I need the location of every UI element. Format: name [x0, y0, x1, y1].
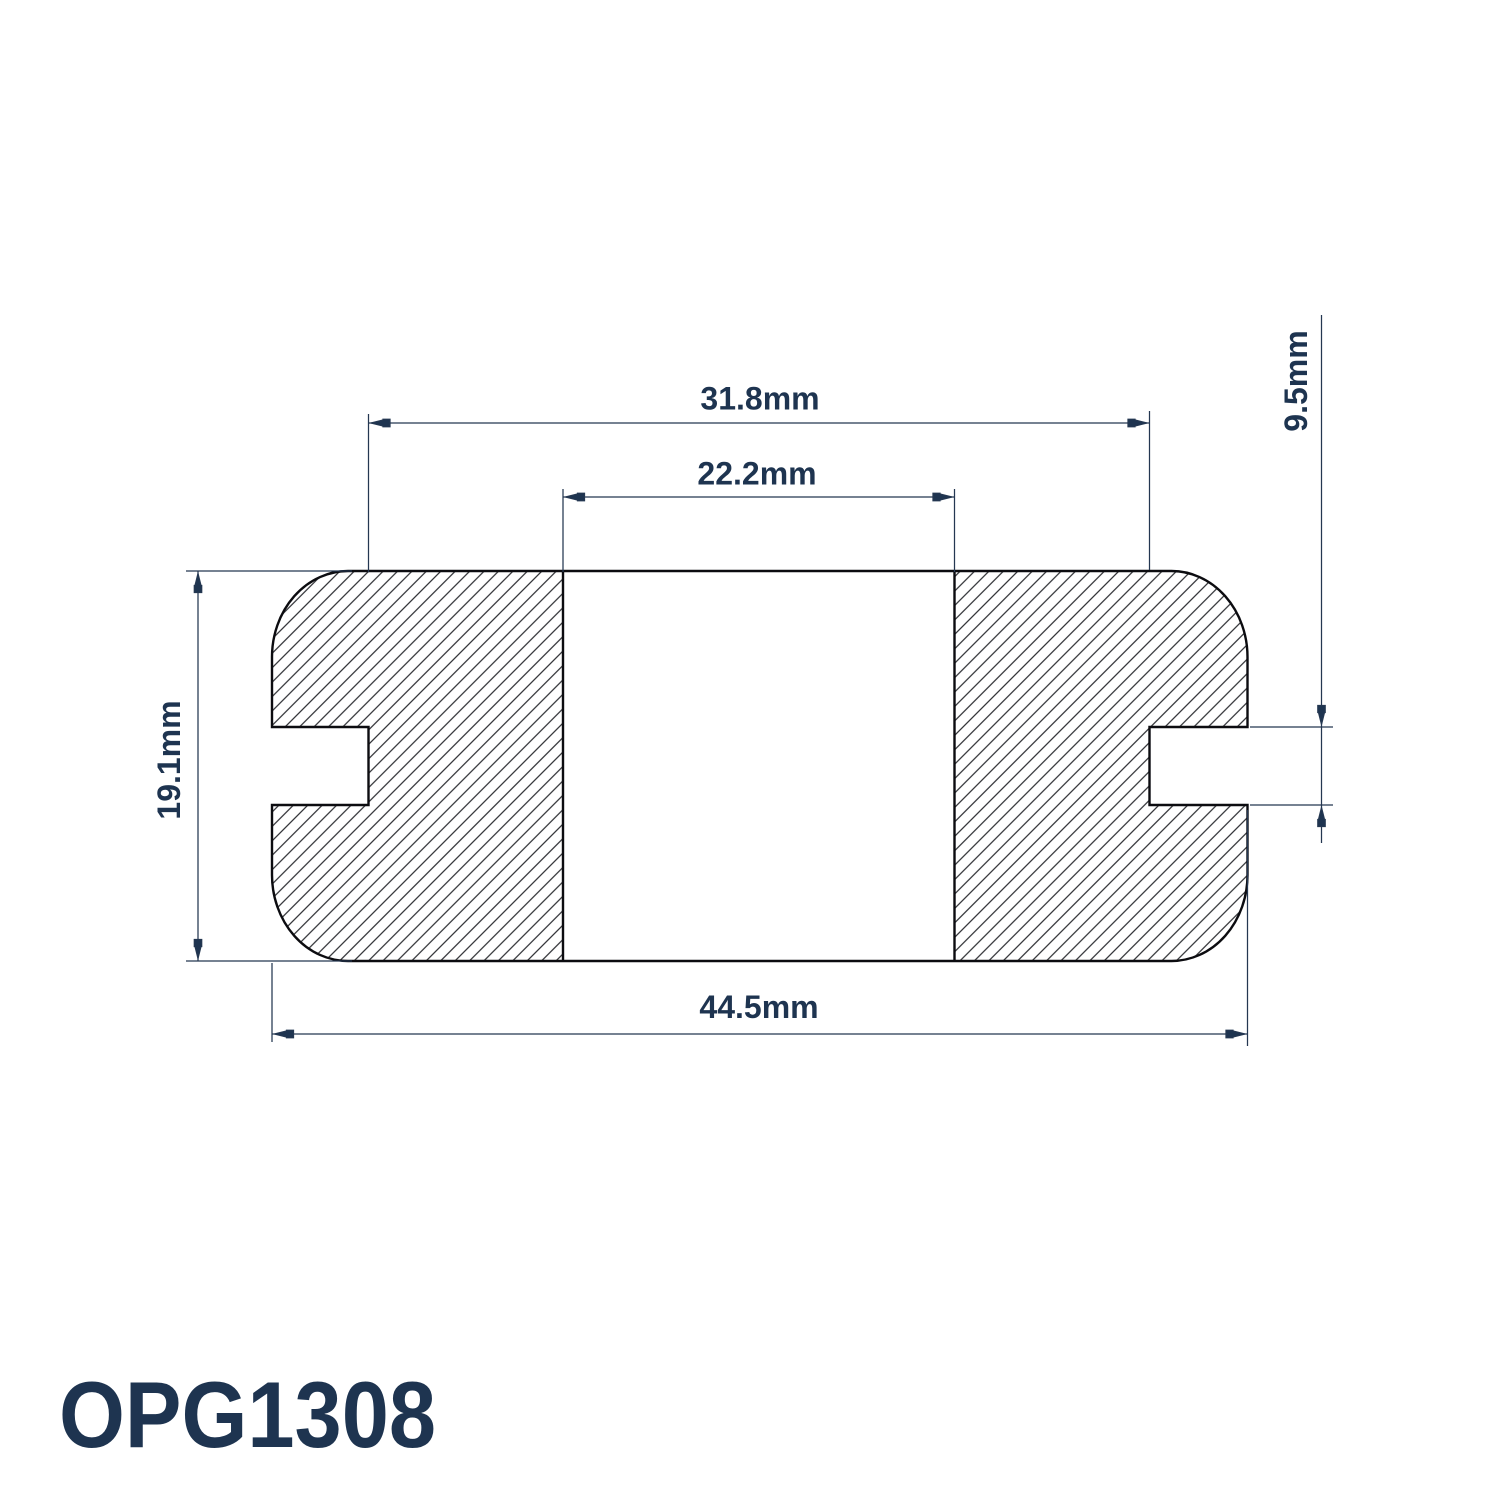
svg-text:9.5mm: 9.5mm	[1278, 330, 1314, 431]
svg-text:44.5mm: 44.5mm	[699, 989, 818, 1025]
svg-text:OPG1308: OPG1308	[59, 1362, 436, 1467]
svg-text:19.1mm: 19.1mm	[151, 700, 187, 819]
svg-text:31.8mm: 31.8mm	[700, 381, 819, 417]
svg-text:22.2mm: 22.2mm	[697, 456, 816, 492]
